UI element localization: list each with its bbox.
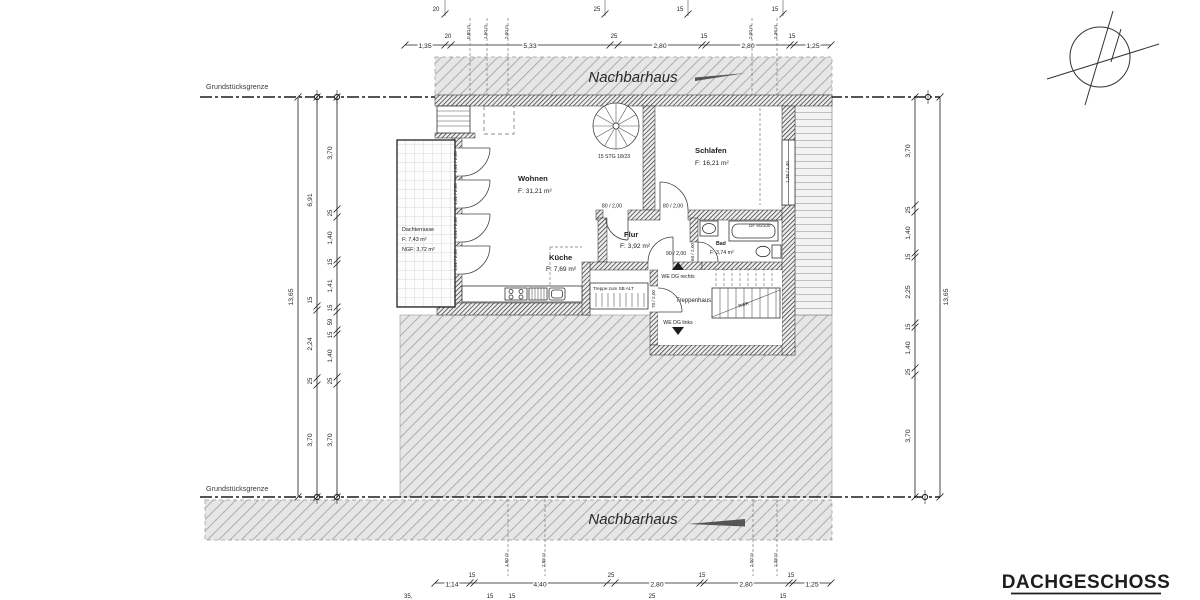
boundary-label-bottom: Grundstücksgrenze xyxy=(206,484,268,493)
dimension-chain-right: 3,70 25 1,40 15 2,25 15 1,40 25 3,70 13,… xyxy=(905,94,950,501)
dim-label: 25 xyxy=(308,377,314,384)
height-label: 2,00 m xyxy=(748,25,753,39)
neighbor-label-bottom: Nachbarhaus xyxy=(588,511,678,528)
schlafen-area-label: F: 16,21 m² xyxy=(695,160,730,167)
wall-wohnen-schlafen xyxy=(643,106,655,210)
dim-label: 3,70 xyxy=(327,146,334,159)
neighbor-label-top: Nachbarhaus xyxy=(588,69,678,86)
dim-label: 15 xyxy=(469,573,476,579)
wall-ministair xyxy=(435,133,475,138)
bad-area-label: F: 3,74 m² xyxy=(710,250,734,256)
dim-label: 15 xyxy=(772,7,779,13)
wall-treppenhaus-west xyxy=(650,312,658,345)
dim-label: 25 xyxy=(328,209,334,216)
height-label: 1,36 m xyxy=(773,25,778,39)
wall-bad-south xyxy=(702,262,782,270)
flur-area-label: F: 3,92 m² xyxy=(620,243,651,250)
wall-schlafen-south xyxy=(688,210,782,220)
ministair-box xyxy=(437,106,470,133)
dim-label: 2,24 xyxy=(307,337,314,350)
height-label: 1,50 m xyxy=(483,25,488,39)
dim-label: 15 xyxy=(780,594,787,600)
room-labels: Wohnen F: 31,21 m² Schlafen F: 16,21 m² … xyxy=(518,146,734,273)
dim-label: 15 xyxy=(789,34,796,40)
bad-door-label: 60 / 2,00 xyxy=(690,243,695,261)
dim-label: 1,40 xyxy=(905,341,912,354)
floor-plan-drawing: Grundstücksgrenze Grundstücksgrenze Nach… xyxy=(0,0,1200,600)
sink-basin xyxy=(552,290,563,298)
terrace-door-label: 1,01 / 2,00 xyxy=(453,183,458,205)
north-arrow-icon xyxy=(1047,11,1159,105)
bad-label: Bad xyxy=(716,241,726,247)
dim-label: 2,25 xyxy=(905,285,912,298)
dim-label: 1,25 xyxy=(806,43,819,50)
drawing-title: DACHGESCHOSS xyxy=(1002,572,1171,593)
wall-south-wohnen xyxy=(437,303,590,315)
flur-wohnen-door-label: 80 / 2,00 xyxy=(602,204,622,210)
roof-edge-dashed xyxy=(484,106,514,134)
terrace-ngf-label: NGF: 3,72 m² xyxy=(402,247,435,253)
dim-label: 4,40 xyxy=(533,582,546,589)
dim-label: 1,40 xyxy=(327,349,334,362)
dim-label: 15 xyxy=(328,304,334,311)
treppe-sb-area: Treppe zum SB ALT xyxy=(590,283,648,309)
dim-label: 1,25 xyxy=(805,582,818,589)
dim-label: 59 xyxy=(328,318,334,325)
north-crossline xyxy=(1047,44,1159,79)
dim-label: 15 xyxy=(677,7,684,13)
dim-label: 25 xyxy=(906,206,912,213)
dim-label: 15 xyxy=(906,323,912,330)
dim-label: 5,33 xyxy=(523,43,536,50)
dim-label: 15 xyxy=(328,258,334,265)
hob-burner xyxy=(509,290,513,294)
height-label: 0,80 m xyxy=(466,25,471,39)
height-label: 1,90 m xyxy=(504,553,509,567)
dim-label: 6,91 xyxy=(307,193,314,206)
wall-north xyxy=(435,95,832,106)
treppe-sb-label: Treppe zum SB ALT xyxy=(593,286,634,291)
kueche-label: Küche xyxy=(549,253,572,262)
spiral-stair-label: 15 STG 18/23 xyxy=(598,154,630,160)
hob xyxy=(505,288,527,300)
dim-label: 15 xyxy=(487,594,494,600)
hob-burner xyxy=(519,290,523,294)
wall-east-segment xyxy=(782,205,795,355)
ministair-topleft xyxy=(437,106,514,134)
height-label: 1,38 m xyxy=(773,553,778,567)
wohnen-area-label: F: 31,21 m² xyxy=(518,188,553,195)
terrace-deck xyxy=(397,140,455,307)
dim-label: 1,41 xyxy=(327,279,334,292)
hob-burner xyxy=(519,295,523,299)
df-window-label: DF 60/100 xyxy=(749,223,771,228)
dim-label: 15 xyxy=(906,253,912,260)
dim-label: 25 xyxy=(906,368,912,375)
terrace-area: Dachterrasse F: 7,43 m² NGF: 3,72 m² xyxy=(397,140,455,307)
entry-left-door-label: 70 / 2,00 xyxy=(651,290,656,308)
roof-slope-strip xyxy=(795,95,832,315)
dim-label: 3,70 xyxy=(307,433,314,446)
dim-label: 1,40 xyxy=(905,226,912,239)
dimension-chain-left: 13,65 6,91 15 2,24 25 3,70 3,70 25 1,40 … xyxy=(288,94,341,501)
wall-kueche-east xyxy=(582,262,590,315)
boundary-label-top: Grundstücksgrenze xyxy=(206,82,268,91)
dim-label: 1,14 xyxy=(445,582,458,589)
dim-label: 3,70 xyxy=(327,433,334,446)
spiral-stair: 15 STG 18/23 xyxy=(593,103,639,160)
terrace-door-label: 1,01 / 2,00 xyxy=(453,151,458,173)
height-label: 2,85 m xyxy=(541,553,546,567)
dim-label: 1,40 xyxy=(327,231,334,244)
terrace-door-arc xyxy=(462,214,490,242)
we-dg-links-label: WE DG links xyxy=(663,320,693,326)
kueche-area-label: F: 7,69 m² xyxy=(546,266,577,273)
terrace-door-arc xyxy=(462,180,490,208)
height-label: 2,00 m xyxy=(749,553,754,567)
dim-label: 35, xyxy=(404,594,413,600)
entry-right-door-arc xyxy=(648,237,673,262)
dim-label: 1,35 xyxy=(418,43,431,50)
dim-label: 15 xyxy=(308,296,314,303)
dim-connectors xyxy=(445,0,783,16)
dim-label: 15 xyxy=(328,331,334,338)
terrace-door-label: 1,01 / 2,00 xyxy=(453,249,458,271)
dim-ticks xyxy=(912,94,944,501)
dim-label: 3,70 xyxy=(905,429,912,442)
dim-label: 2,80 xyxy=(739,582,752,589)
spiral-center xyxy=(613,123,619,129)
dim-label: 3,70 xyxy=(905,144,912,157)
wall-flur-south xyxy=(590,262,648,270)
wall-east-segment xyxy=(782,106,795,140)
dim-ticks xyxy=(442,11,787,18)
wall-flur-north xyxy=(628,210,660,220)
north-circle xyxy=(1070,27,1130,87)
toilet-bowl xyxy=(756,246,770,256)
dim-label: 15 xyxy=(509,594,516,600)
wall-treppenhaus-west xyxy=(650,270,658,286)
dim-label: 25 xyxy=(649,594,656,600)
flur-label: Flur xyxy=(624,230,638,239)
dim-lines xyxy=(915,97,940,497)
dim-label: 25 xyxy=(611,34,618,40)
dim-label: 20 xyxy=(445,34,452,40)
window-label: 1,38 / 1,40 xyxy=(785,161,790,183)
terrace-door-label: 1,01 / 2,00 xyxy=(453,217,458,239)
schlafen-label: Schlafen xyxy=(695,146,727,155)
schlafen-door-label: 80 / 2,00 xyxy=(663,204,683,210)
wall-flur-bad xyxy=(690,218,698,242)
wall-flur-west xyxy=(598,218,607,262)
terrace-door-arc xyxy=(462,246,490,274)
schlafen-window: 1,38 / 1,40 xyxy=(782,140,795,205)
height-label: 2,00 m xyxy=(504,25,509,39)
we-dg-rechts-label: WE DG rechts xyxy=(661,274,695,280)
terrace-door-arc xyxy=(462,148,490,176)
dim-label: 15 xyxy=(788,573,795,579)
terrace-label: Dachterrasse xyxy=(402,227,434,233)
dim-label: 25 xyxy=(608,573,615,579)
dim-label: 13,65 xyxy=(943,288,950,305)
hob-burner xyxy=(509,295,513,299)
terrace-area-label: F: 7,43 m² xyxy=(402,237,427,243)
dim-label: 25 xyxy=(594,7,601,13)
dim-label: 2,80 xyxy=(653,43,666,50)
north-needle xyxy=(1085,11,1113,105)
wall-treppenhaus-south xyxy=(650,345,795,355)
washbasin xyxy=(703,224,716,234)
drawing-title-block: DACHGESCHOSS xyxy=(1002,572,1171,594)
dim-label: 15 xyxy=(699,573,706,579)
treppenhaus-label: Treppenhaus xyxy=(676,298,711,304)
dim-label: 2,80 xyxy=(741,43,754,50)
toilet-cistern xyxy=(772,245,781,258)
dim-label: 25 xyxy=(328,377,334,384)
dim-label: 15 xyxy=(701,34,708,40)
dim-label: 20 xyxy=(433,7,440,13)
entry-right-door-label: 90 / 2,00 xyxy=(666,251,686,257)
wohnen-label: Wohnen xyxy=(518,174,548,183)
floor-plan-canvas: Grundstücksgrenze Grundstücksgrenze Nach… xyxy=(0,0,1200,600)
dim-label: 2,80 xyxy=(650,582,663,589)
dim-label: 13,65 xyxy=(288,288,295,305)
